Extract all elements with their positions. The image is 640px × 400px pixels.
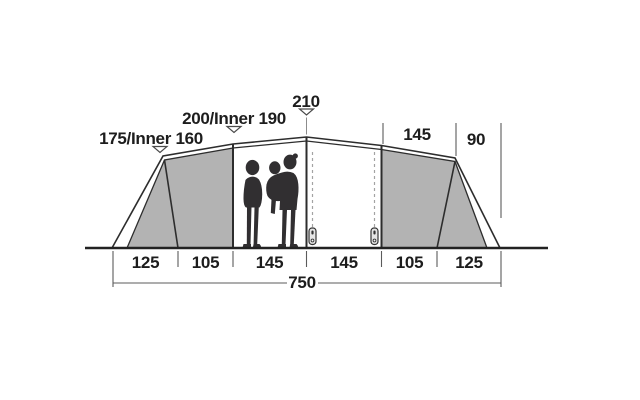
top-width-label: 145 bbox=[403, 125, 430, 144]
floor-width-label: 145 bbox=[330, 253, 357, 272]
triangle-down-icon bbox=[227, 127, 241, 133]
height-label-mid: 200/Inner 190 bbox=[182, 109, 286, 128]
people-silhouette-icon bbox=[243, 153, 299, 247]
door-zips bbox=[309, 152, 378, 245]
total-width-label: 750 bbox=[288, 273, 315, 292]
floor-width-label: 105 bbox=[192, 253, 219, 272]
floor-width-label: 125 bbox=[132, 253, 159, 272]
zipper-pull-icon bbox=[309, 228, 316, 245]
diagram-canvas: 175/Inner 160 200/Inner 190 210 145 90 1 bbox=[0, 0, 640, 400]
triangle-down-icon bbox=[153, 147, 167, 153]
height-label-front: 175/Inner 160 bbox=[99, 129, 203, 148]
total-width-dimension: 750 bbox=[113, 273, 501, 292]
top-width-label: 90 bbox=[467, 130, 485, 149]
triangle-down-icon bbox=[300, 109, 314, 115]
height-label-peak: 210 bbox=[292, 92, 319, 111]
floor-width-label: 145 bbox=[256, 253, 283, 272]
floor-width-label: 105 bbox=[396, 253, 423, 272]
zipper-pull-icon bbox=[371, 228, 378, 245]
floor-width-label: 125 bbox=[455, 253, 482, 272]
tent-dimension-diagram: 175/Inner 160 200/Inner 190 210 145 90 1 bbox=[0, 0, 640, 400]
